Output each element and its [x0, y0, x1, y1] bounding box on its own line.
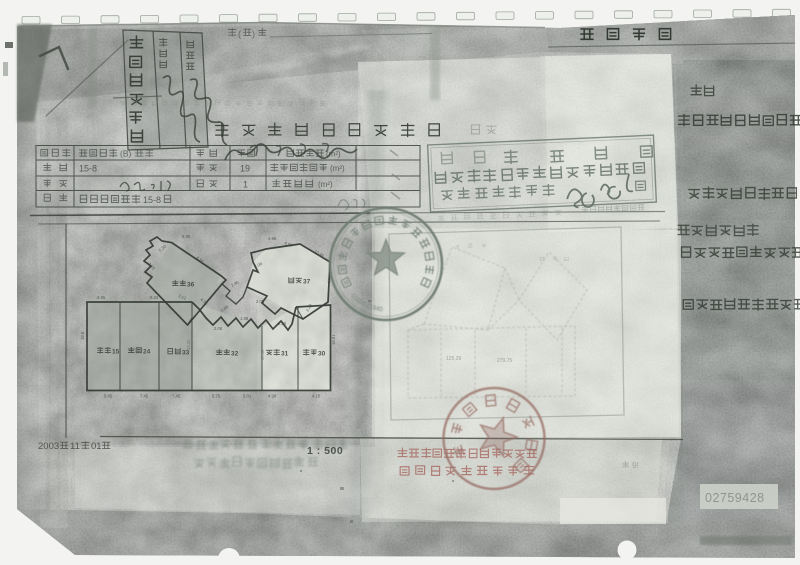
svg-text:(: (	[238, 29, 241, 39]
svg-text:02759428: 02759428	[705, 491, 765, 505]
svg-text:1: 1	[243, 180, 248, 190]
svg-text:11: 11	[70, 441, 80, 452]
svg-text:): )	[252, 29, 255, 39]
svg-text:1 : 500: 1 : 500	[307, 445, 343, 457]
svg-text:(m²): (m²)	[330, 164, 345, 173]
svg-text:15-8: 15-8	[79, 164, 97, 174]
svg-text:125.29: 125.29	[446, 356, 462, 362]
svg-text:15-8: 15-8	[143, 195, 161, 205]
svg-text:(B): (B)	[120, 149, 132, 159]
svg-text:01: 01	[91, 441, 102, 452]
svg-text:279.75: 279.75	[497, 358, 513, 364]
svg-text:19: 19	[240, 164, 250, 174]
svg-text:(m²): (m²)	[318, 180, 333, 189]
svg-text:9!: 9!	[632, 461, 639, 470]
svg-text:2003: 2003	[38, 441, 59, 452]
